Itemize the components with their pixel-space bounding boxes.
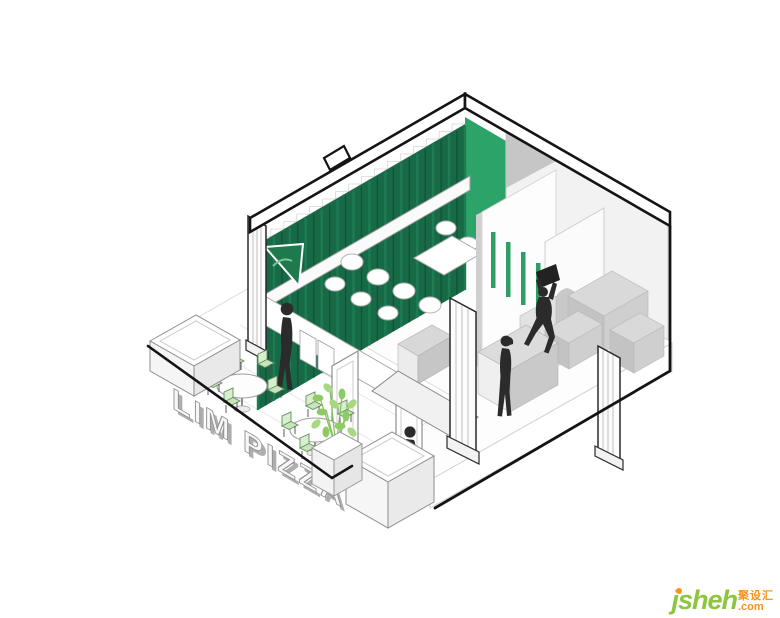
watermark-logo[interactable]: jsheh 聚设汇 .com bbox=[671, 587, 774, 614]
lounge-chair bbox=[436, 221, 456, 235]
lounge-chair bbox=[325, 277, 345, 291]
lounge-chair bbox=[393, 283, 415, 299]
pilaster-left bbox=[246, 216, 268, 362]
lounge-chair bbox=[351, 292, 371, 306]
lounge-chair bbox=[419, 297, 441, 313]
lounge-chair bbox=[341, 254, 363, 270]
watermark-tld: .com bbox=[738, 602, 764, 613]
lounge-chair bbox=[378, 306, 398, 320]
lounge-chair bbox=[367, 269, 389, 285]
partition-edge bbox=[476, 212, 482, 367]
pilaster-center bbox=[447, 298, 479, 464]
illustration-canvas: LIM LIM PIZZA PIZZA bbox=[0, 0, 780, 618]
